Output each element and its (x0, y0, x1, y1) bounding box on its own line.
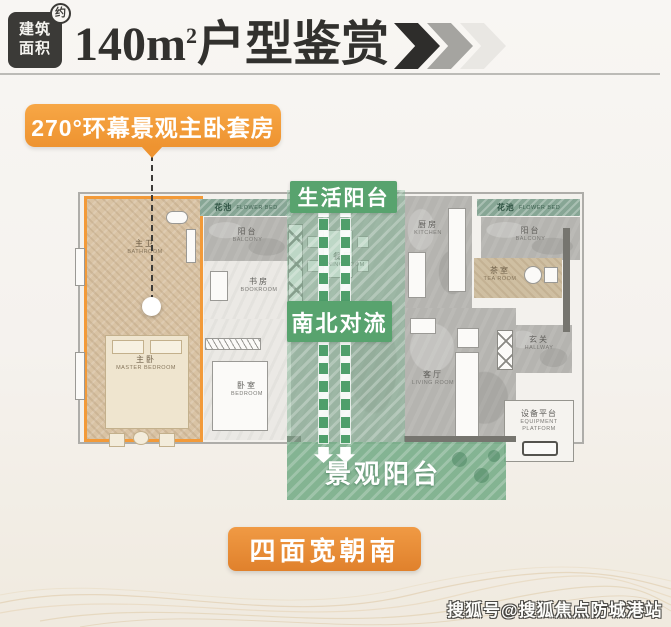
chevron-icon (394, 23, 440, 69)
bookroom: 书房 BOOKROOM (204, 261, 291, 319)
round-table-shape (524, 266, 542, 284)
life-balcony-label: 生活阳台 (290, 181, 397, 213)
room-label: 阳台 BALCONY (204, 227, 291, 244)
wardrobe-shape (205, 338, 261, 350)
island-shape (408, 252, 426, 298)
chair-shape (544, 267, 558, 283)
bay-window-shape (75, 248, 85, 286)
living-room: 客厅 LIVING ROOM (404, 308, 516, 440)
wall-segment (563, 228, 570, 332)
patio-furniture-shape (452, 452, 467, 467)
bed-shape (105, 335, 189, 429)
kitchen: 厨房 KITCHEN (404, 196, 472, 308)
tv-shape (410, 318, 436, 334)
patio-furniture-shape (488, 450, 500, 462)
pillow-shape (150, 340, 182, 354)
room-label: 卧室 BEDROOM (218, 381, 276, 398)
patio-furniture-shape (474, 468, 489, 483)
room-label: 书房 BOOKROOM (230, 277, 288, 294)
room-label: 阳台 BALCONY (487, 226, 574, 243)
area-badge: 建筑 面积 约 (8, 12, 62, 68)
callout-pointer (141, 146, 163, 158)
page-title: 140m2户型鉴赏 (74, 4, 389, 74)
callout-lead-line (151, 155, 153, 301)
tea-room: 茶室 TEA ROOM (474, 258, 562, 298)
master-suite-highlight: 主卫 BATHROOM 主卧 MASTER BEDROOM (84, 196, 203, 442)
armchair-shape (457, 328, 479, 348)
airflow-label: 南北对流 (287, 301, 392, 342)
room-label: 茶室 TEA ROOM (476, 266, 524, 283)
room-label-master-bath: 主卫 BATHROOM (105, 239, 185, 256)
approx-bubble: 约 (50, 3, 71, 24)
pillow-shape (112, 340, 144, 354)
desk-shape (210, 271, 228, 301)
callout-anchor-dot (142, 297, 161, 316)
stool-shape (109, 433, 125, 447)
equipment-platform: 设备平台 EQUIPMENT PLATFORM (504, 400, 574, 462)
area-badge-line2: 面积 (19, 40, 51, 59)
stool-shape (159, 433, 175, 447)
ac-unit-shape (522, 441, 558, 456)
room-label-master-bedroom: 主卧 MASTER BEDROOM (101, 355, 191, 372)
flower-bed-left: 花池 FLOWER BED (200, 199, 292, 216)
watermark: 搜狐号@搜狐焦点防城港站 (447, 596, 663, 621)
poster-stage: 建筑 面积 约 140m2户型鉴赏 270°环幕景观主卧套房 主卫 BATHRO… (0, 0, 671, 627)
room-label: 客厅 LIVING ROOM (404, 370, 462, 387)
view-balcony-label: 景观阳台 (315, 454, 451, 491)
header-divider (0, 73, 660, 75)
table-shape (133, 431, 149, 445)
toilet-shape (166, 211, 188, 224)
vanity-shape (186, 229, 196, 263)
room-label: 厨房 KITCHEN (406, 220, 450, 237)
title-number: 140m (74, 18, 186, 71)
sofa-shape (455, 352, 479, 440)
closet-shape (497, 330, 513, 370)
bay-window-shape (75, 352, 85, 400)
title-superscript: 2 (186, 23, 197, 48)
room-label: 设备平台 EQUIPMENT PLATFORM (509, 409, 569, 433)
room-label: 玄关 HALLWAY (514, 335, 564, 352)
flower-bed-right: 花池 FLOWER BED (477, 199, 580, 216)
counter-shape (448, 208, 466, 292)
master-suite-callout: 270°环幕景观主卧套房 (25, 104, 281, 147)
area-badge-line1: 建筑 (19, 21, 51, 40)
south-facing-banner: 四面宽朝南 (228, 527, 421, 571)
title-text: 户型鉴赏 (197, 18, 389, 71)
balcony-left: 阳台 BALCONY (204, 217, 291, 261)
